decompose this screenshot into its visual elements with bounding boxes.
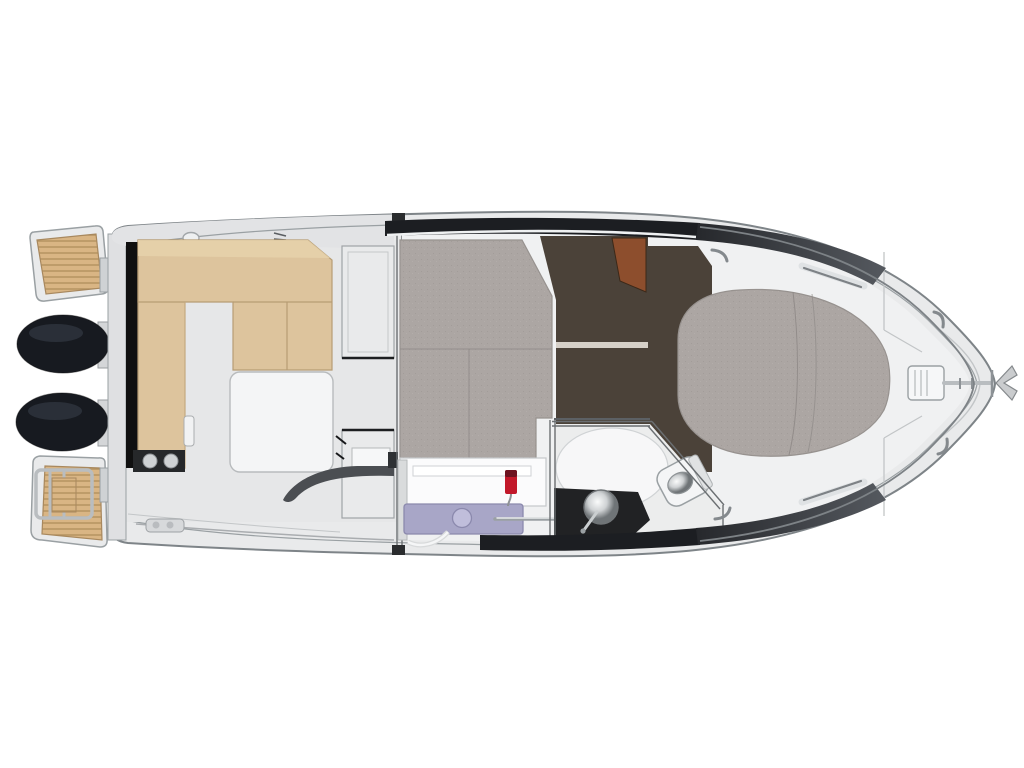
bench-handle <box>184 416 194 446</box>
bench-backrest <box>138 240 330 258</box>
floorplan-svg <box>0 0 1024 768</box>
cupholder <box>164 454 178 468</box>
head-sink <box>584 490 618 524</box>
cockpit <box>108 215 398 541</box>
cockpit-table <box>230 372 333 472</box>
step-pad <box>146 519 184 532</box>
transom <box>108 234 126 540</box>
windlass <box>908 366 944 400</box>
outboard-engine-port <box>17 315 109 373</box>
step-latch <box>167 522 174 529</box>
galley-front <box>400 458 546 506</box>
mid-cabin-berth <box>400 240 552 460</box>
faucet-cap <box>505 470 517 477</box>
outboard-engine-starboard <box>16 393 108 451</box>
cupholder <box>143 454 157 468</box>
swim-platform-starboard <box>31 456 116 547</box>
swim-platform-port <box>30 226 116 301</box>
step-latch <box>153 522 160 529</box>
boat-floorplan <box>0 0 1024 768</box>
floor-step <box>556 342 648 348</box>
transom-black-strip <box>126 242 138 468</box>
teak-deck <box>37 234 102 294</box>
module-a <box>342 246 394 358</box>
galley-sink <box>453 509 472 528</box>
